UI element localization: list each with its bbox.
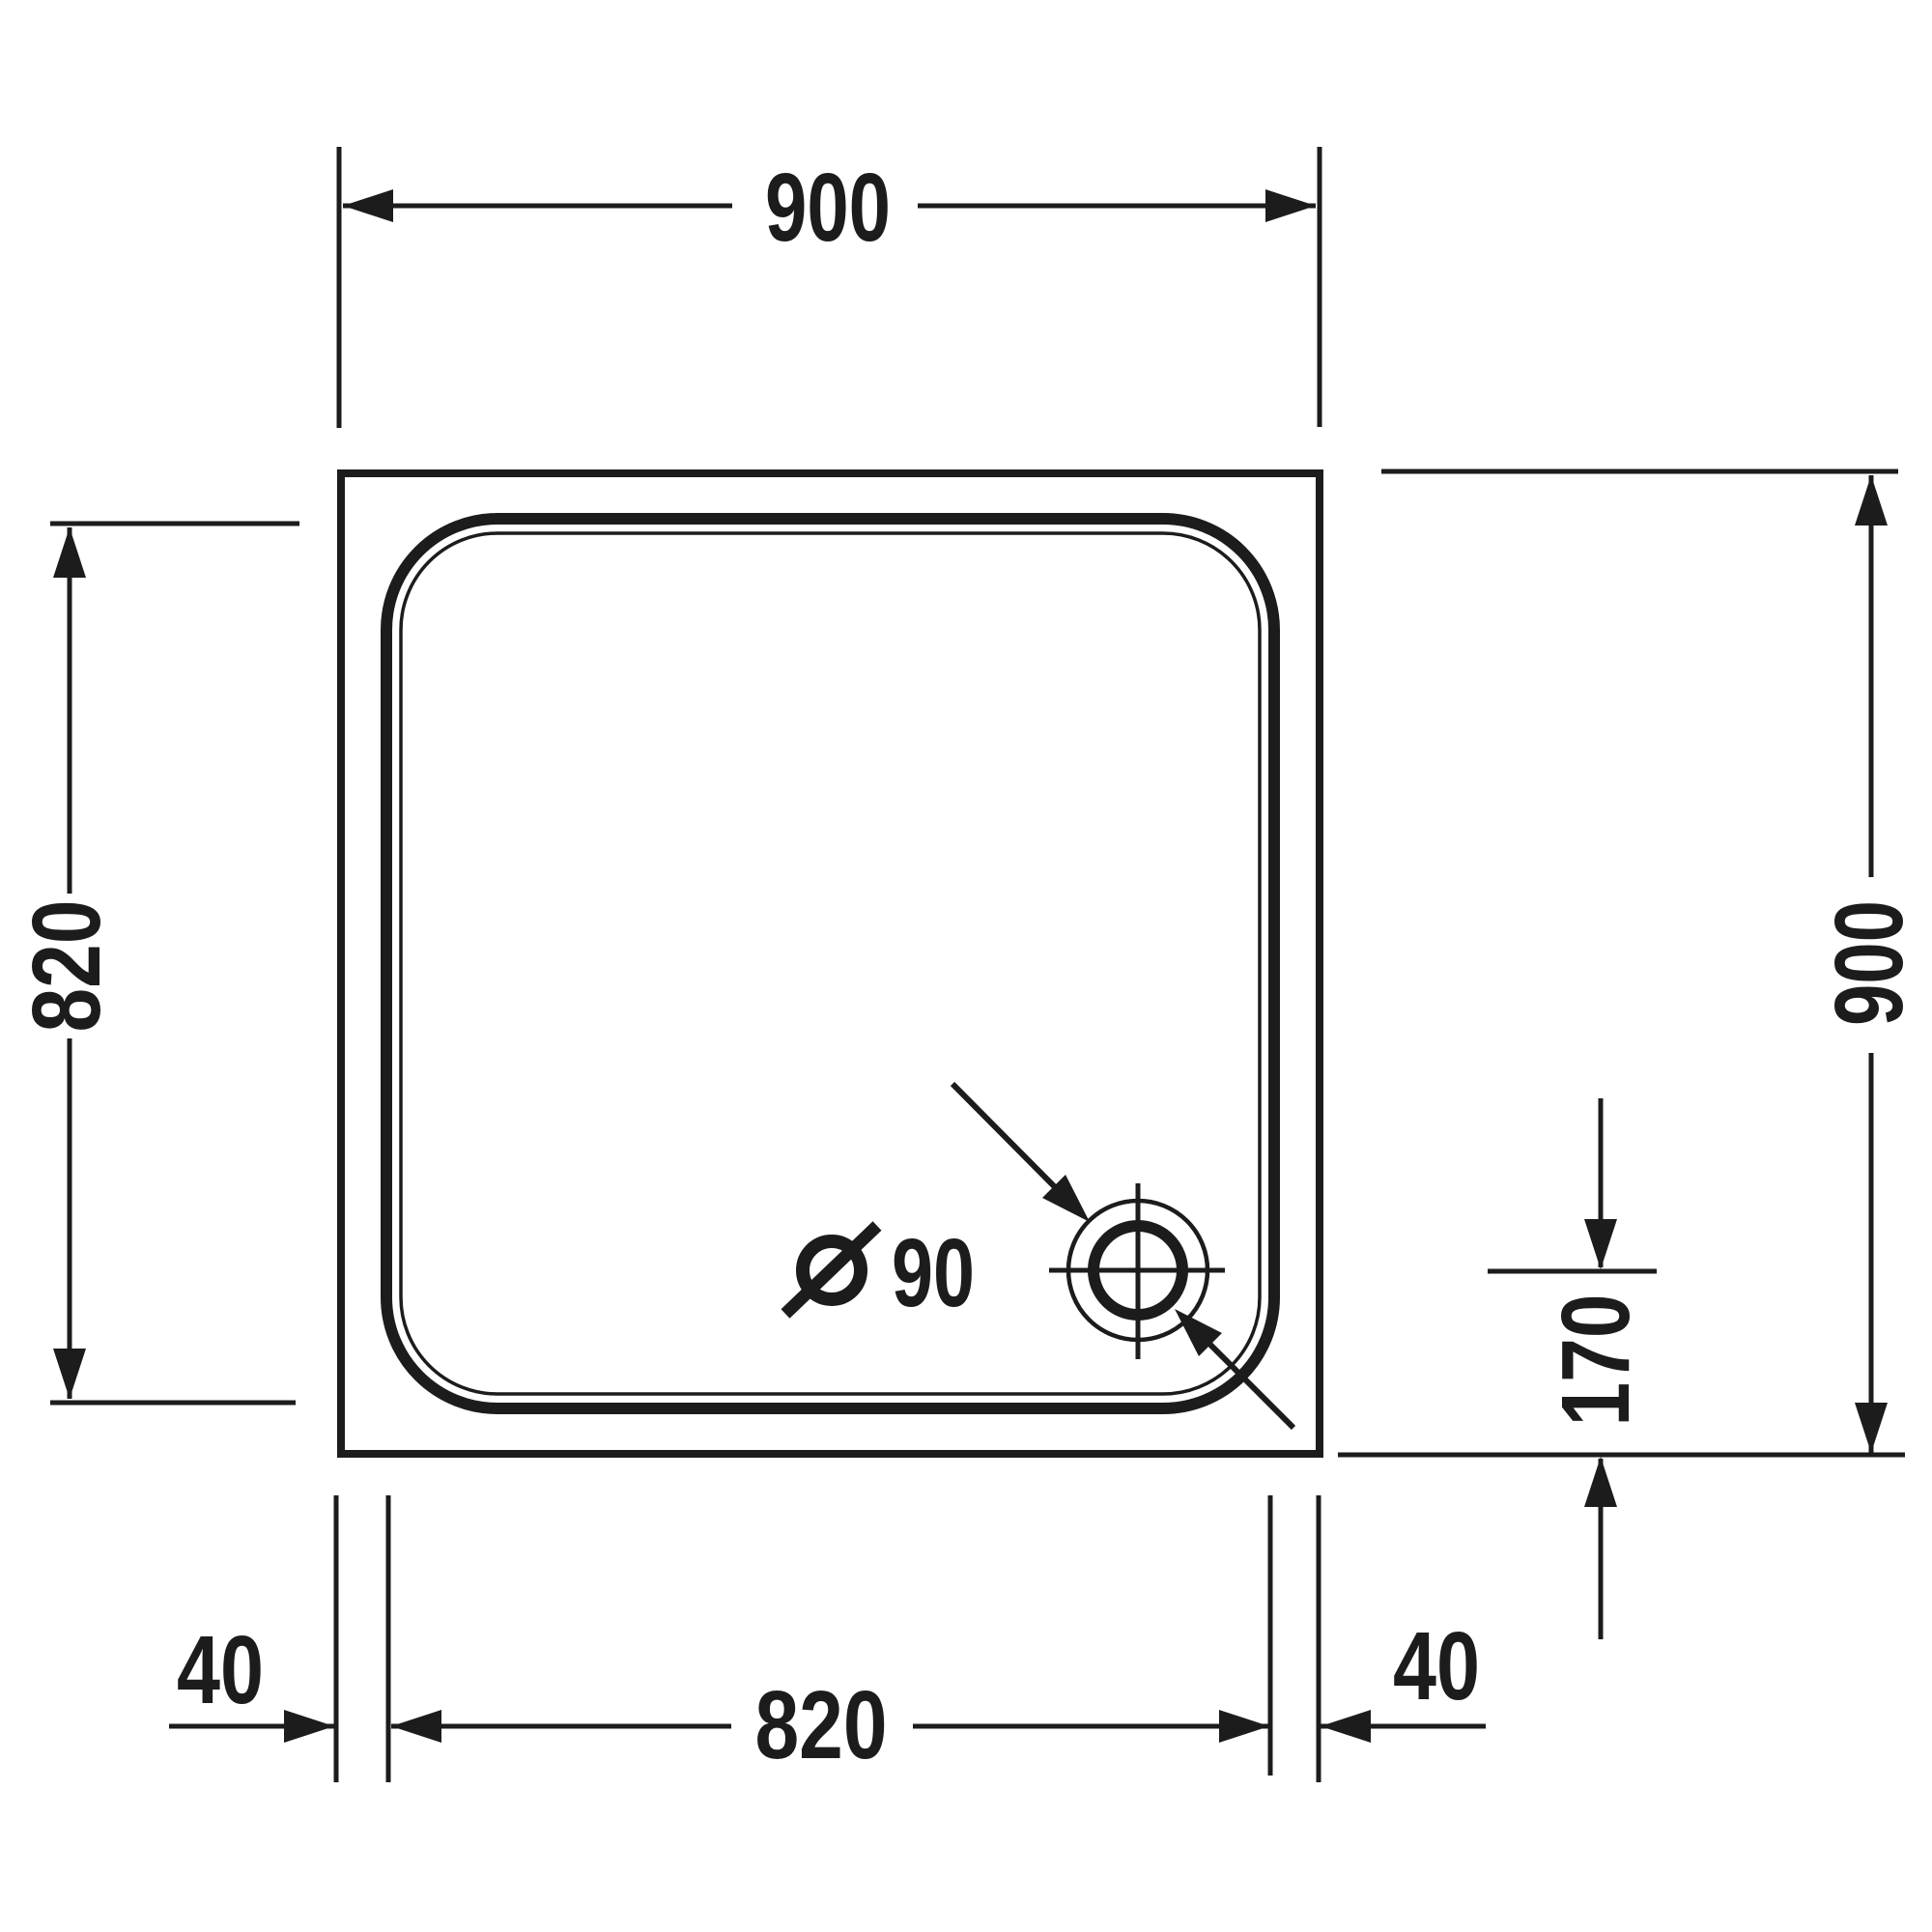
drawing-canvas: 90 900 900 820 40 xyxy=(0,0,1932,1932)
dim-top-900: 900 xyxy=(339,147,1320,428)
drain-leader-line-lower xyxy=(1206,1340,1293,1428)
dim-bottom-left-40-arrow-icon xyxy=(284,1710,334,1743)
dim-left-820: 820 xyxy=(13,524,299,1403)
tray-outer-edge xyxy=(341,473,1320,1454)
dim-left-arrow-up-icon xyxy=(53,527,86,578)
shower-tray-technical-drawing: 90 900 900 820 40 xyxy=(0,0,1932,1932)
drain-diameter-label: 90 xyxy=(785,1219,975,1327)
dim-bottom-right-40-arrow-icon xyxy=(1321,1710,1371,1743)
dim-right-arrow-up-icon xyxy=(1855,475,1888,526)
tray-body xyxy=(341,473,1320,1454)
dim-bottom-group: 40 820 40 xyxy=(169,1495,1486,1782)
dim-170-value: 170 xyxy=(1542,1294,1650,1427)
drain-leader-arrows xyxy=(952,1084,1293,1428)
dim-left-arrow-down-icon xyxy=(53,1349,86,1399)
dim-right-arrow-down-icon xyxy=(1855,1403,1888,1453)
dim-bottom-820-arrow-right-icon xyxy=(1219,1710,1269,1743)
dim-drain-offset-170: 170 xyxy=(1488,1098,1657,1639)
drain-diameter-value: 90 xyxy=(892,1219,975,1327)
dim-right-value: 900 xyxy=(1815,900,1923,1026)
dim-bottom-right-40-value: 40 xyxy=(1393,1612,1480,1720)
dim-top-arrow-left-icon xyxy=(343,189,393,222)
dim-bottom-820-value: 820 xyxy=(755,1671,888,1779)
dim-top-value: 900 xyxy=(765,154,891,262)
dim-top-arrow-right-icon xyxy=(1265,189,1316,222)
dim-bottom-820-arrow-left-icon xyxy=(391,1710,441,1743)
dim-170-arrow-down-icon xyxy=(1584,1219,1617,1269)
dim-left-value: 820 xyxy=(13,900,121,1033)
diameter-symbol-icon xyxy=(785,1226,877,1314)
dim-170-arrow-up-icon xyxy=(1584,1457,1617,1507)
dim-bottom-left-40-value: 40 xyxy=(177,1616,264,1724)
